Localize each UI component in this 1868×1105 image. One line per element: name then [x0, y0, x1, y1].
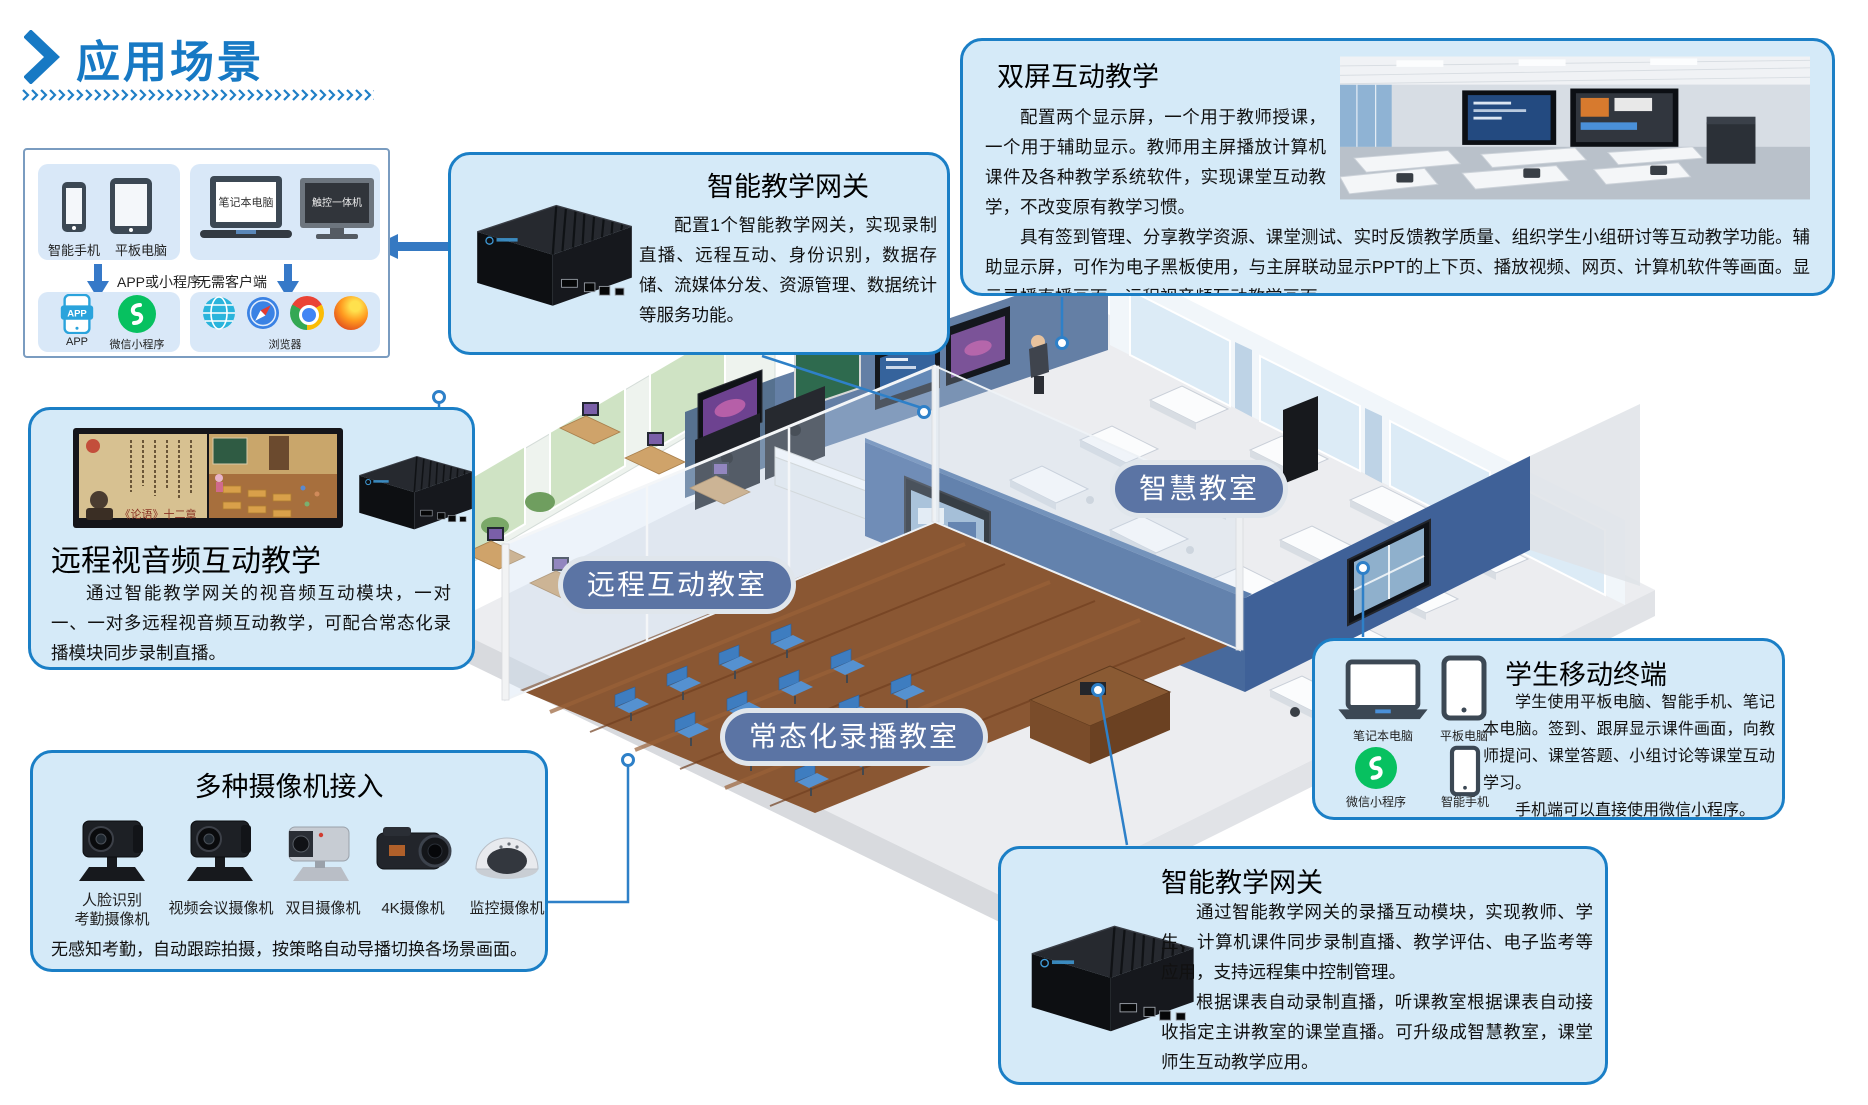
tablet-icon [108, 176, 154, 236]
callout-body: 无感知考勤，自动跟踪拍摄，按策略自动导播切换各场景画面。 [51, 935, 535, 960]
cameras-callout: 多种摄像机接入 [30, 750, 548, 972]
gateway-device-image [463, 195, 639, 311]
callout-body: 配置1个智能教学网关，实现录制直播、远程互动、身份识别，数据存储、流媒体分发、资… [639, 210, 937, 330]
safari-icon [246, 296, 280, 330]
touch-panel-icon: 触控一体机 [298, 176, 376, 244]
ptz-camera-icon [175, 805, 265, 887]
laptop-label: 笔记本电脑 [1333, 727, 1433, 744]
body-paragraph: 通过智能教学网关的录播互动模块，实现教师、学生、计算机课件同步录制直播、教学评估… [1161, 897, 1593, 987]
arrow-a-label: APP或小程序 [117, 272, 201, 292]
tablet-label: 平板电脑 [110, 240, 172, 259]
classroom-photo [1340, 53, 1810, 203]
laptop-icon [1337, 659, 1429, 723]
smartphone-icon [1449, 745, 1481, 797]
body-paragraph: 具有签到管理、分享教学资源、课堂测试、实时反馈教学质量、组织学生小组研讨等互动教… [985, 222, 1810, 296]
app-icon-label: APP [67, 308, 87, 319]
callout-body: 学生使用平板电脑、智能手机、笔记本电脑。签到、跟屏显示课件画面，向教师提问、课堂… [1483, 689, 1775, 820]
wechat-label: 微信小程序 [104, 336, 170, 352]
camera-label: 监控摄像机 [461, 899, 548, 918]
pc-devices-panel: 笔记本电脑 触控一体机 [190, 164, 380, 260]
client-access-box: 智能手机 平板电脑 笔记本电脑 触控一体机 APP或小程序 [23, 148, 390, 358]
smartphone-label: 智能手机 [46, 240, 102, 259]
body-paragraph: 通过智能教学网关的视音频互动模块，一对一、一对多远程视音频互动教学，可配合常态化… [51, 578, 451, 668]
wechat-icon [118, 295, 156, 333]
app-panel: APP APP 微信小程序 [38, 292, 180, 352]
camera-label: 视频会议摄像机 [163, 899, 279, 918]
browser-panel: 浏览器 [190, 292, 380, 352]
callout-title: 智能教学网关 [1161, 861, 1323, 900]
browser-label: 浏览器 [250, 336, 320, 352]
callout-title: 智能教学网关 [639, 165, 937, 204]
room-label-smart-classroom: 智慧教室 [1110, 460, 1288, 518]
laptop-icon: 笔记本电脑 [198, 174, 294, 246]
callout-title: 远程视音频互动教学 [51, 536, 321, 580]
body-paragraph: 配置1个智能教学网关，实现录制直播、远程互动、身份识别，数据存储、流媒体分发、资… [639, 210, 937, 330]
globe-icon [202, 296, 236, 330]
mobile-devices-panel: 智能手机 平板电脑 [38, 164, 180, 260]
dome-camera-icon [463, 811, 548, 883]
touch-panel-label: 触控一体机 [312, 196, 362, 209]
gateway-device-image [349, 448, 475, 534]
screen-caption: 《论语》十二章 [120, 507, 197, 521]
callout-body: 通过智能教学网关的视音频互动模块，一对一、一对多远程视音频互动教学，可配合常态化… [51, 578, 451, 668]
room-label-remote-interactive-classroom: 远程互动教室 [558, 556, 796, 614]
body-paragraph: 根据课表自动录制直播，听课教室根据课表自动接收指定主讲教室的课堂直播。可升级成智… [1161, 987, 1593, 1077]
camera-label: 人脸识别 考勤摄像机 [57, 891, 167, 929]
smartphone-icon [60, 180, 88, 234]
body-paragraph: 学生使用平板电脑、智能手机、笔记本电脑。签到、跟屏显示课件画面，向教师提问、课堂… [1483, 689, 1775, 797]
wechat-icon [1355, 747, 1397, 789]
wechat-label: 微信小程序 [1341, 793, 1411, 810]
remote-class-screen-image: 《论语》十二章 [73, 428, 343, 528]
camera-label: 4K摄像机 [373, 899, 453, 918]
callout-title: 多种摄像机接入 [33, 765, 545, 804]
application-scenario-diagram: 应用场景 智能手机 平板电脑 笔记本电脑 [0, 0, 1868, 1105]
dual-screen-callout: 双屏互动教学 配置两个显示屏，一个用于教师授课，一个用于辅助显示。教师用主屏播放… [960, 38, 1835, 296]
camera-label: 双目摄像机 [279, 899, 367, 918]
arrow-b-label: 无需客户端 [197, 272, 267, 292]
box-camera-icon [369, 811, 457, 883]
student-terminal-callout: 笔记本电脑 平板电脑 微信小程序 智能手机 学生移动终端 学生使用平板电脑、智能… [1312, 638, 1785, 820]
callout-title: 学生移动终端 [1505, 653, 1667, 692]
room-label-recording-classroom: 常态化录播教室 [720, 708, 988, 766]
gateway-bottom-callout: 智能教学网关 通过智能教学网关的录播互动模块，实现教师、学生、计算机课件同步录制… [998, 846, 1608, 1085]
chrome-icon [290, 296, 324, 330]
remote-av-callout: 《论语》十二章 远程视音频互动教学 通过智能教学网关的视音频互动模块，一对一、一… [28, 407, 475, 670]
binocular-camera-icon [277, 807, 363, 887]
firefox-icon [334, 296, 368, 330]
laptop-screen-label: 笔记本电脑 [219, 195, 274, 209]
body-paragraph: 手机端可以直接使用微信小程序。 [1483, 797, 1775, 820]
gateway-top-callout: 智能教学网关 配置1个智能教学网关，实现录制直播、远程互动、身份识别，数据存储、… [448, 152, 950, 355]
app-label: APP [53, 336, 101, 348]
app-icon: APP [60, 294, 94, 334]
tablet-icon [1441, 655, 1487, 721]
ptz-camera-icon [67, 805, 157, 887]
callout-body: 通过智能教学网关的录播互动模块，实现教师、学生、计算机课件同步录制直播、教学评估… [1161, 897, 1593, 1077]
